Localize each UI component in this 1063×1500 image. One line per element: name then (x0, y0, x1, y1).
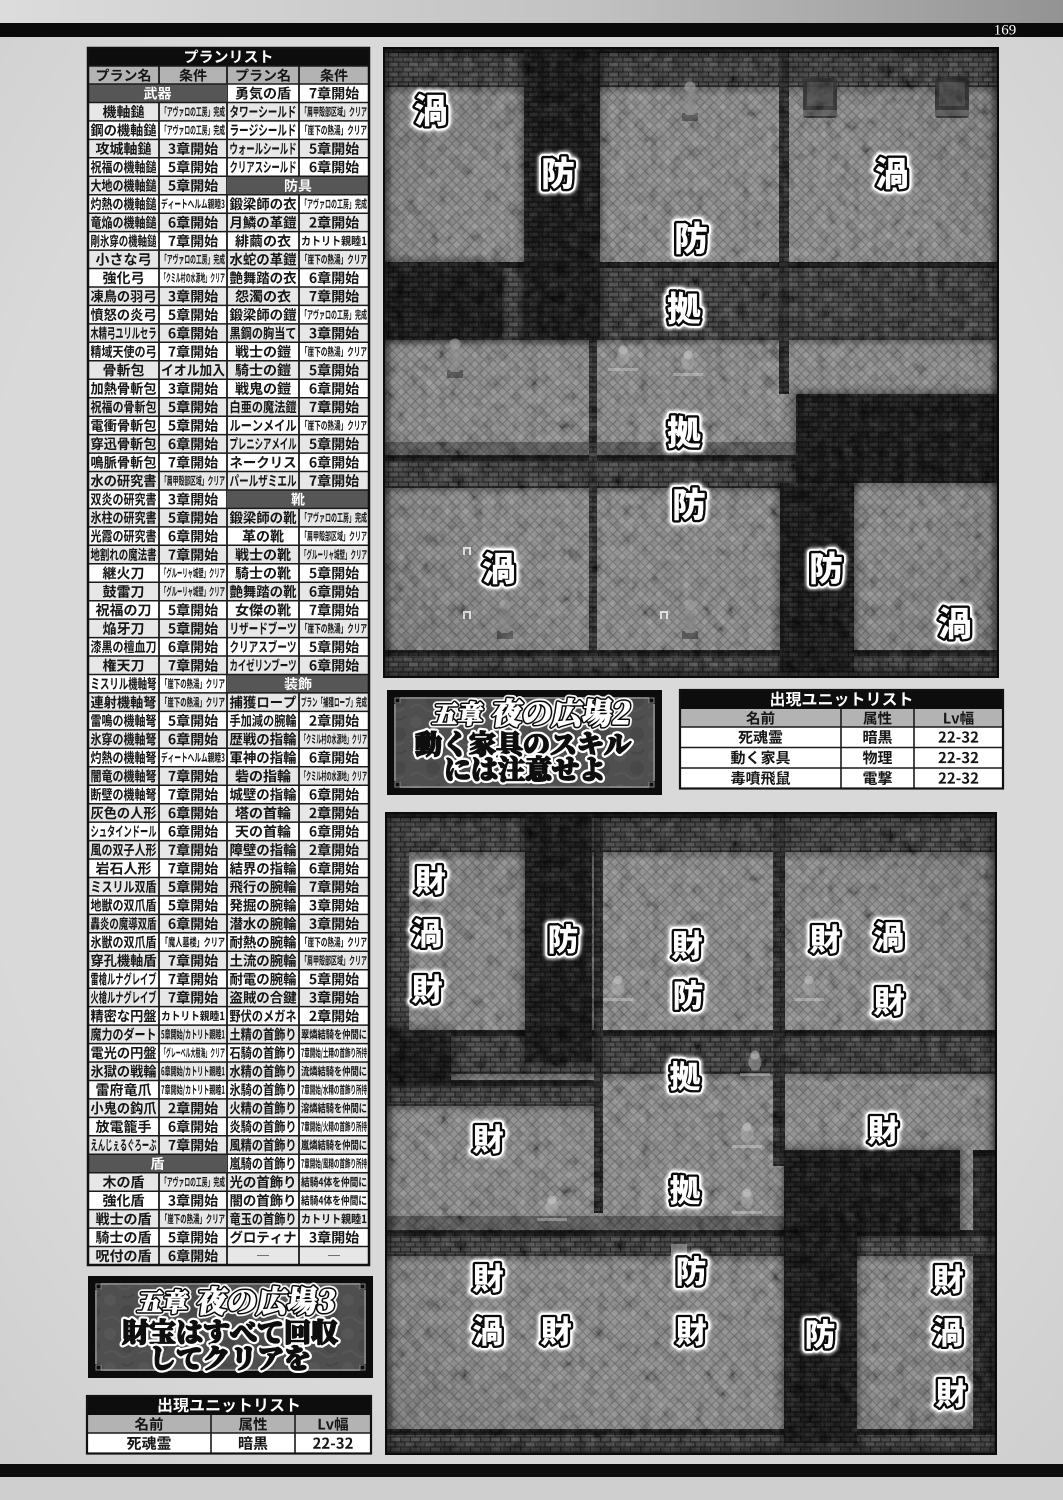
svg-text:169: 169 (994, 23, 1017, 39)
